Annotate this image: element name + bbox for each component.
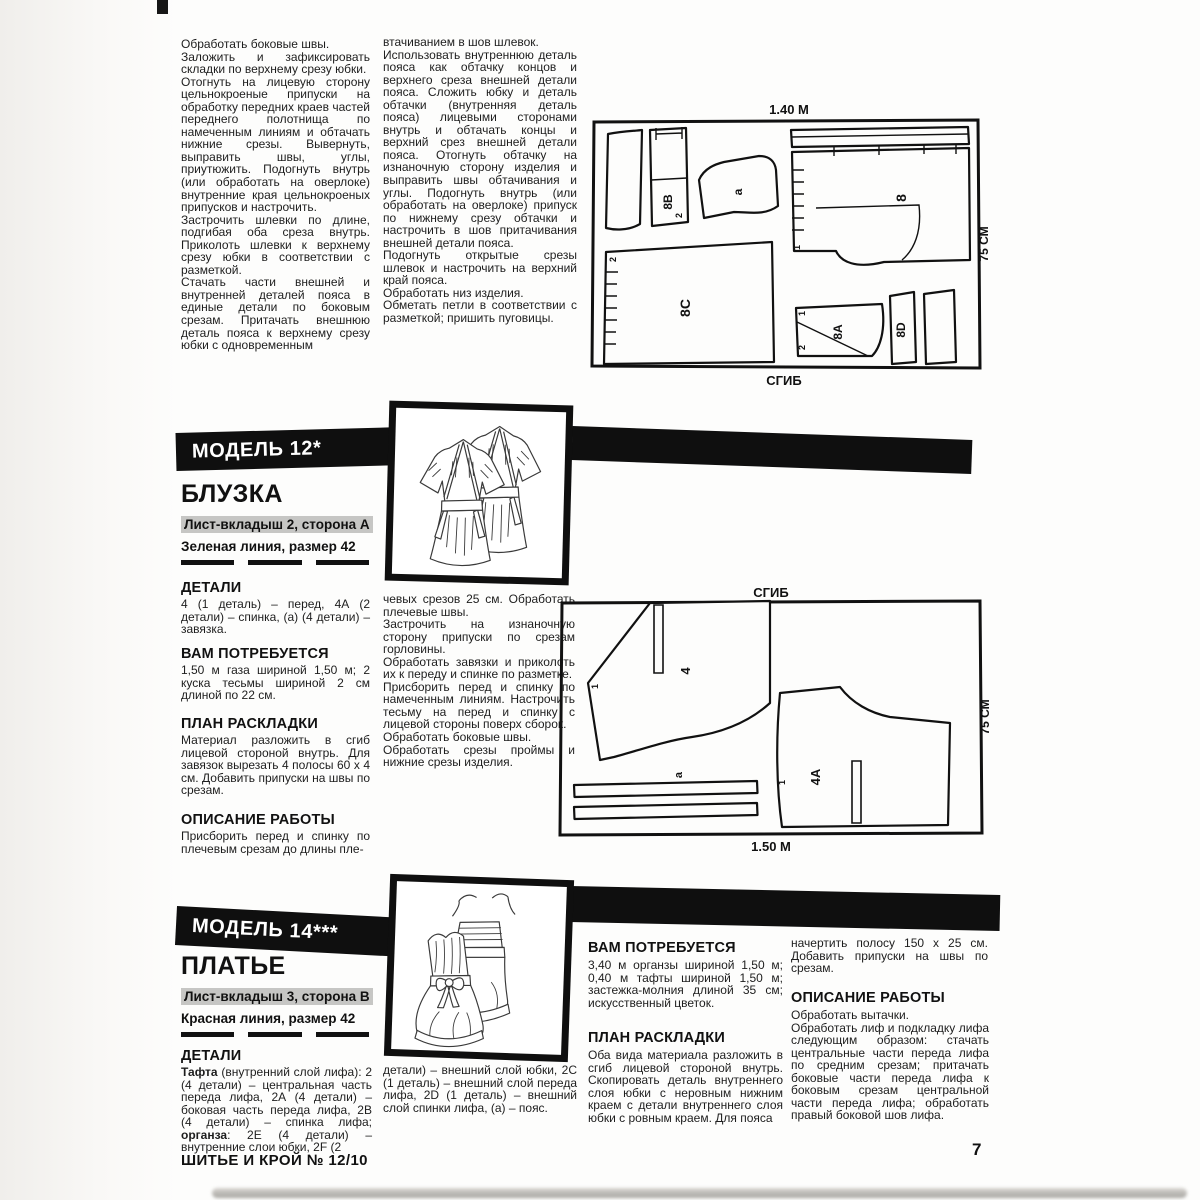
- model14-band-label: МОДЕЛЬ 14***: [175, 914, 338, 945]
- paragraph: Тафта (внутренний слой лифа): 2 (4 детал…: [181, 1066, 372, 1154]
- paragraph: Застрочить на изнаночную сторону припуск…: [383, 618, 575, 656]
- paragraph: Обработать вытачки.: [791, 1009, 989, 1022]
- paragraph: Отогнуть на лицевую сторону цельнокроены…: [181, 76, 370, 214]
- piece-label-8A: 8A: [831, 324, 845, 340]
- piece-number: 2: [608, 257, 618, 262]
- model12-details-heading: ДЕТАЛИ: [181, 580, 241, 596]
- cutting-layout-diagram-1: 1.40 M 75 СМ СГИБ: [584, 100, 990, 392]
- model12-band-label: МОДЕЛЬ 12*: [176, 437, 322, 464]
- model14-garment-title: ПЛАТЬЕ: [181, 952, 286, 981]
- model12-line-info: Зеленая линия, размер 42: [181, 539, 356, 554]
- paragraph: Присборить перед и спинку по намеченным …: [383, 681, 575, 731]
- paragraph: Обработать лиф и подкладку лифа следующи…: [791, 1022, 989, 1122]
- separator-dashes: [181, 1032, 369, 1037]
- piece-number: 1: [797, 311, 807, 316]
- paragraph: Обработать срезы проймы и нижние срезы и…: [383, 744, 575, 769]
- model14-details-text-left: Тафта (внутренний слой лифа): 2 (4 детал…: [181, 1066, 372, 1154]
- piece-number: 2: [674, 213, 684, 218]
- piece-number: 1: [777, 780, 787, 785]
- paragraph: Обработать боковые швы.: [383, 731, 575, 744]
- paragraph: Застрочить шлевки по длине, подгибая оба…: [181, 214, 370, 277]
- model12-sheet-info: Лист-вкладыш 2, сторона А: [181, 516, 373, 534]
- separator-dashes: [181, 560, 369, 565]
- model12-layout-text: Материал разложить в сгиб лицевой сторон…: [181, 734, 370, 797]
- piece-label-8B: 8B: [661, 194, 675, 210]
- model14-layout-continuation: начертить полосу 150 х 25 см. Добавить п…: [791, 937, 988, 975]
- model14-band-left: МОДЕЛЬ 14***: [175, 906, 391, 956]
- page-number: 7: [972, 1140, 981, 1160]
- pattern-piece-8B: [650, 128, 688, 226]
- diagram1-height-label: 75 СМ: [977, 226, 990, 261]
- piece-label-8C: 8C: [677, 299, 693, 317]
- model12-need-text: 1,50 м газа шириной 1,50 м; 2 куска тесь…: [181, 664, 370, 702]
- piece-number: 1: [590, 684, 600, 689]
- blouse-illustration-box: [385, 401, 574, 586]
- model12-band-right: [571, 426, 972, 474]
- piece-label-4: 4: [678, 667, 693, 675]
- piece-label-8D: 8D: [894, 322, 908, 338]
- model14-need-heading: ВАМ ПОТРЕБУЕТСЯ: [588, 940, 736, 956]
- model12-layout-heading: ПЛАН РАСКЛАДКИ: [181, 716, 318, 732]
- diagram2-height-label: 75 СМ: [978, 699, 990, 734]
- pattern-strip-2: [574, 803, 758, 819]
- model12-details-text: 4 (1 деталь) – перед, 4А (2 детали) – сп…: [181, 598, 370, 636]
- model12-need-heading: ВАМ ПОТРЕБУЕТСЯ: [181, 646, 329, 662]
- piece-label-4A: 4А: [808, 768, 823, 785]
- diagram2-width-label: 1.50 M: [751, 839, 791, 854]
- diagram2-fold-label: СГИБ: [753, 585, 788, 600]
- cutting-layout-diagram-2: СГИБ 75 СМ 1.50 M 4 4А а 1 1: [552, 585, 990, 857]
- blouse-sketch: [392, 408, 566, 578]
- model12-work-continuation: чевых срезов 25 см. Обработать плечевые …: [383, 593, 575, 855]
- dress-sketch: [391, 881, 567, 1055]
- pattern-strip-1: [574, 781, 758, 797]
- paragraph: Обработать завязки и приколоть их к пере…: [383, 656, 575, 681]
- model12-garment-title: БЛУЗКА: [181, 480, 283, 509]
- diagram1-fold-label: СГИБ: [766, 373, 801, 388]
- piece-number: 1: [792, 245, 802, 250]
- model12-work-text: Присборить перед и спинку по плечевым ср…: [181, 830, 370, 855]
- model14-need-text: 3,40 м органзы шириной 1,50 м; 0,40 м та…: [588, 959, 783, 1009]
- paragraph: Обработать боковые швы.: [181, 38, 370, 51]
- article-top-col2: втачиванием в шов шлевок. Использовать в…: [383, 36, 577, 388]
- page-bottom-shadow: [212, 1188, 1187, 1198]
- piece-label-a: а: [731, 188, 745, 195]
- paragraph: Стачать части внешней и внутренней детал…: [181, 276, 370, 351]
- paragraph: Заложить и зафиксировать складки по верх…: [181, 51, 370, 76]
- pattern-piece-4: [588, 601, 770, 760]
- dress-illustration-box: [384, 874, 574, 1062]
- model12-work-heading: ОПИСАНИЕ РАБОТЫ: [181, 812, 335, 828]
- magazine-footer: ШИТЬЕ И КРОЙ № 12/10: [181, 1152, 368, 1169]
- piece-label-a2: а: [673, 771, 685, 778]
- paragraph: Использовать внутреннюю деталь пояса как…: [383, 49, 577, 250]
- paragraph: чевых срезов 25 см. Обработать плечевые …: [383, 593, 575, 618]
- pattern-piece-unlabeled: [924, 290, 956, 364]
- model14-work-heading: ОПИСАНИЕ РАБОТЫ: [791, 990, 945, 1006]
- pattern-piece-4A: [777, 687, 950, 827]
- model14-work-text: Обработать вытачки. Обработать лиф и под…: [791, 1009, 989, 1122]
- model14-sheet-info: Лист-вкладыш 3, сторона В: [181, 988, 373, 1006]
- paragraph: Подогнуть открытые срезы шлевок и настро…: [383, 249, 577, 287]
- article-top-col1: Обработать боковые швы. Заложить и зафик…: [181, 38, 370, 388]
- model14-details-text-mid: детали) – внешний слой юбки, 2С (1 детал…: [383, 1064, 577, 1114]
- piece-label-8: 8: [893, 194, 909, 202]
- paragraph: втачиванием в шов шлевок.: [383, 36, 577, 49]
- diagram1-width-label: 1.40 M: [769, 102, 809, 117]
- piece-number: 2: [797, 345, 807, 350]
- paragraph: Обметать петли в соответствии с разметко…: [383, 299, 577, 324]
- model14-band-right: [570, 886, 1001, 931]
- page-left-shade: [0, 0, 178, 1200]
- model14-layout-text: Оба вида материала разложить в сгиб лице…: [588, 1049, 783, 1124]
- magazine-page: Обработать боковые швы. Заложить и зафик…: [0, 0, 1200, 1200]
- pattern-piece-strip: [606, 130, 642, 229]
- model14-line-info: Красная линия, размер 42: [181, 1011, 355, 1026]
- scan-corner-mark: [157, 0, 168, 14]
- pattern-piece-a: [699, 156, 778, 218]
- model14-details-heading: ДЕТАЛИ: [181, 1048, 241, 1064]
- model12-band-left: МОДЕЛЬ 12*: [176, 427, 391, 471]
- model14-layout-heading: ПЛАН РАСКЛАДКИ: [588, 1030, 725, 1046]
